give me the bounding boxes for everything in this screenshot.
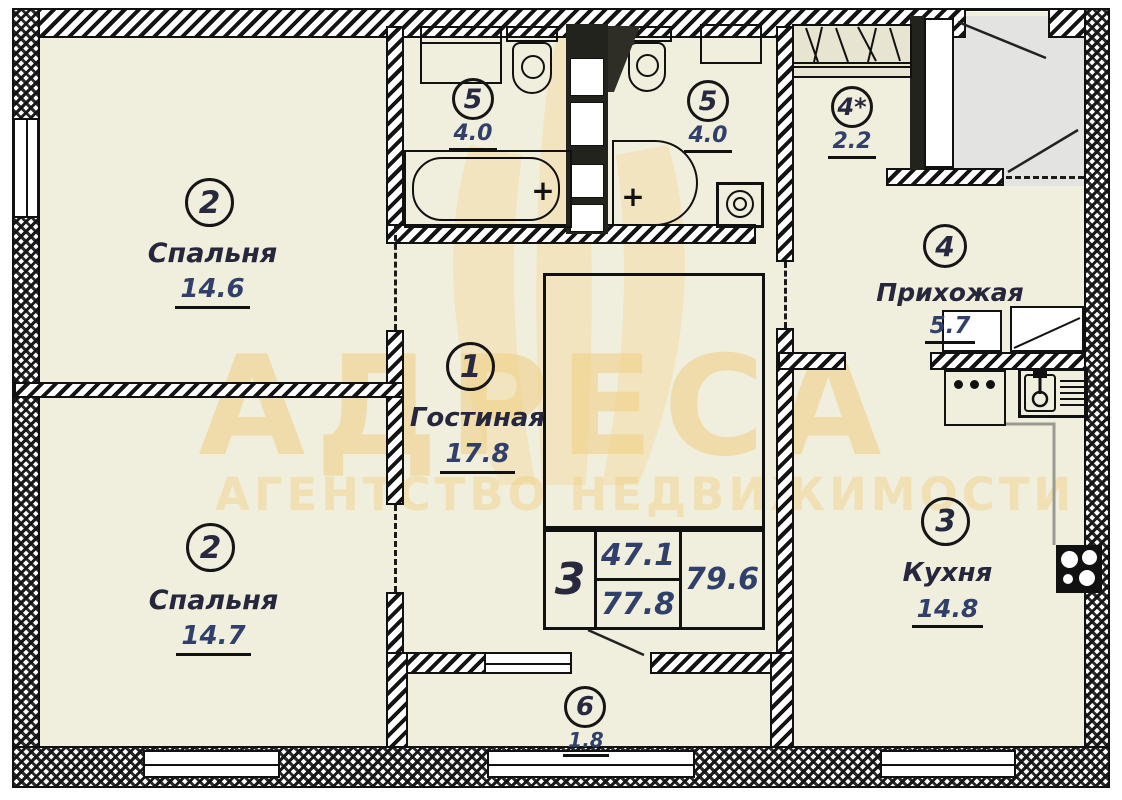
badge-closet-number: 4* bbox=[837, 93, 866, 121]
badge-hallway: 4 bbox=[923, 224, 967, 268]
label-bedroom-top: Спальня bbox=[135, 238, 290, 269]
window-kitchen bbox=[880, 750, 1016, 778]
label-hallway: Прихожая bbox=[870, 278, 1030, 307]
vent-shaft-box-2 bbox=[570, 102, 604, 146]
toilet-left-seat bbox=[521, 55, 545, 79]
stamp-apartment-area-value: 77.8 bbox=[601, 587, 675, 622]
area-bedroom-top: 14.6 bbox=[160, 274, 265, 309]
window-bedroom-top-left bbox=[13, 118, 39, 218]
badge-kitchen-number: 3 bbox=[935, 504, 956, 539]
badge-bedroom-top-number: 2 bbox=[199, 185, 221, 221]
badge-bath-left: 5 bbox=[452, 78, 494, 120]
entrance-door-leaf bbox=[924, 18, 954, 168]
stove-knob-2 bbox=[970, 380, 979, 389]
door-opening-bedroom-bottom bbox=[394, 505, 397, 592]
badge-living: 1 bbox=[446, 342, 495, 391]
toilet-left-tank bbox=[506, 26, 558, 42]
vent-shaft-box-3 bbox=[570, 164, 604, 198]
cabinet-bath-left-shelf bbox=[420, 42, 502, 44]
wardrobe-rail bbox=[792, 62, 912, 68]
hob-burner-2 bbox=[1082, 550, 1097, 565]
badge-closet: 4* bbox=[831, 86, 873, 128]
area-kitchen-value: 14.8 bbox=[912, 594, 984, 628]
wall-balcony-side-left bbox=[386, 652, 408, 748]
area-balcony: 1.8 bbox=[555, 728, 617, 757]
stamp-apartment-area: 77.8 bbox=[594, 578, 682, 630]
badge-bath-left-number: 5 bbox=[464, 84, 483, 115]
badge-bedroom-top: 2 bbox=[185, 178, 234, 227]
door-opening-entrance bbox=[1006, 176, 1084, 179]
area-balcony-value: 1.8 bbox=[563, 728, 608, 757]
badge-balcony-number: 6 bbox=[576, 692, 594, 722]
wall-center-left-b bbox=[386, 330, 404, 505]
badge-bath-right-number: 5 bbox=[699, 86, 718, 117]
badge-kitchen: 3 bbox=[921, 497, 970, 546]
wall-closet-bottom bbox=[886, 168, 1004, 186]
kitchen-drainboard bbox=[1060, 376, 1084, 410]
badge-bedroom-bottom: 2 bbox=[186, 523, 235, 572]
door-opening-hallway-living bbox=[784, 262, 787, 328]
area-closet: 2.2 bbox=[817, 129, 887, 159]
wall-balcony-left bbox=[404, 652, 486, 674]
area-bath-left-value: 4.0 bbox=[449, 121, 498, 151]
area-bedroom-bottom: 14.7 bbox=[161, 621, 266, 656]
toilet-right-seat bbox=[636, 54, 659, 77]
hob-burner-4 bbox=[1079, 570, 1095, 586]
area-bedroom-top-value: 14.6 bbox=[175, 274, 249, 309]
cabinet-bath-right bbox=[700, 24, 762, 64]
stamp-living-area: 47.1 bbox=[594, 529, 682, 581]
bathtub-drain-plus: + bbox=[528, 174, 558, 207]
area-bedroom-bottom-value: 14.7 bbox=[176, 621, 250, 656]
wall-closet-right bbox=[910, 16, 924, 170]
area-living-value: 17.8 bbox=[440, 439, 514, 474]
wall-bedroom-partition bbox=[14, 382, 404, 398]
badge-hallway-number: 4 bbox=[935, 230, 954, 263]
area-bath-right-value: 4.0 bbox=[684, 123, 733, 153]
label-living: Гостиная bbox=[405, 403, 550, 433]
hob-burner-3 bbox=[1063, 574, 1073, 584]
washing-machine-drum-inner bbox=[733, 197, 747, 211]
stove-knob-3 bbox=[986, 380, 995, 389]
wall-top-landing-line bbox=[966, 8, 1050, 11]
door-opening-bedroom-top bbox=[394, 226, 397, 330]
toilet-right-tank bbox=[622, 26, 672, 42]
area-bath-left: 4.0 bbox=[438, 121, 508, 151]
kitchen-sink-basin bbox=[1024, 374, 1056, 412]
stamp-room-count-value: 3 bbox=[555, 554, 586, 605]
cabinet-bath-left bbox=[420, 26, 502, 84]
area-bath-right: 4.0 bbox=[673, 123, 743, 153]
wall-center-right-b bbox=[776, 328, 794, 658]
wardrobe-closet bbox=[792, 24, 912, 78]
stamp-frame bbox=[543, 273, 765, 529]
window-bedroom-bottom bbox=[143, 750, 280, 778]
badge-bedroom-bottom-number: 2 bbox=[200, 530, 222, 566]
area-hallway: 5.7 bbox=[915, 313, 985, 344]
stamp-total-area-value: 79.6 bbox=[685, 562, 759, 597]
area-living: 17.8 bbox=[425, 439, 530, 474]
vent-shaft-box-1 bbox=[570, 58, 604, 96]
stamp-room-count: 3 bbox=[543, 529, 597, 630]
vent-shaft-box-4 bbox=[570, 204, 604, 232]
label-bedroom-bottom: Спальня bbox=[136, 585, 291, 616]
wall-center-left-a bbox=[386, 26, 404, 226]
wall-center-left-c bbox=[386, 592, 404, 658]
badge-bath-right: 5 bbox=[687, 80, 729, 122]
window-balcony-inner bbox=[484, 652, 572, 674]
wall-balcony-kitchen bbox=[770, 652, 794, 748]
wall-hall-kitchen-left bbox=[778, 352, 846, 370]
hall-cabinet-b bbox=[1010, 306, 1084, 352]
kitchen-stove-cabinet bbox=[944, 370, 1006, 426]
area-hallway-value: 5.7 bbox=[925, 313, 976, 344]
badge-living-number: 1 bbox=[460, 349, 482, 385]
label-kitchen: Кухня bbox=[875, 558, 1020, 588]
area-kitchen: 14.8 bbox=[895, 594, 1000, 628]
badge-balcony: 6 bbox=[564, 686, 606, 728]
stove-knob-1 bbox=[954, 380, 963, 389]
hob-burner-1 bbox=[1061, 551, 1078, 568]
stamp-total-area: 79.6 bbox=[679, 529, 765, 630]
area-closet-value: 2.2 bbox=[828, 129, 877, 159]
floor-plan: АДРЕСА АГЕНТСТВО НЕДВИЖИМОСТИ bbox=[0, 0, 1122, 800]
shower-drain-plus: + bbox=[618, 180, 648, 213]
wall-balcony-right bbox=[650, 652, 772, 674]
stamp-living-area-value: 47.1 bbox=[601, 538, 675, 573]
